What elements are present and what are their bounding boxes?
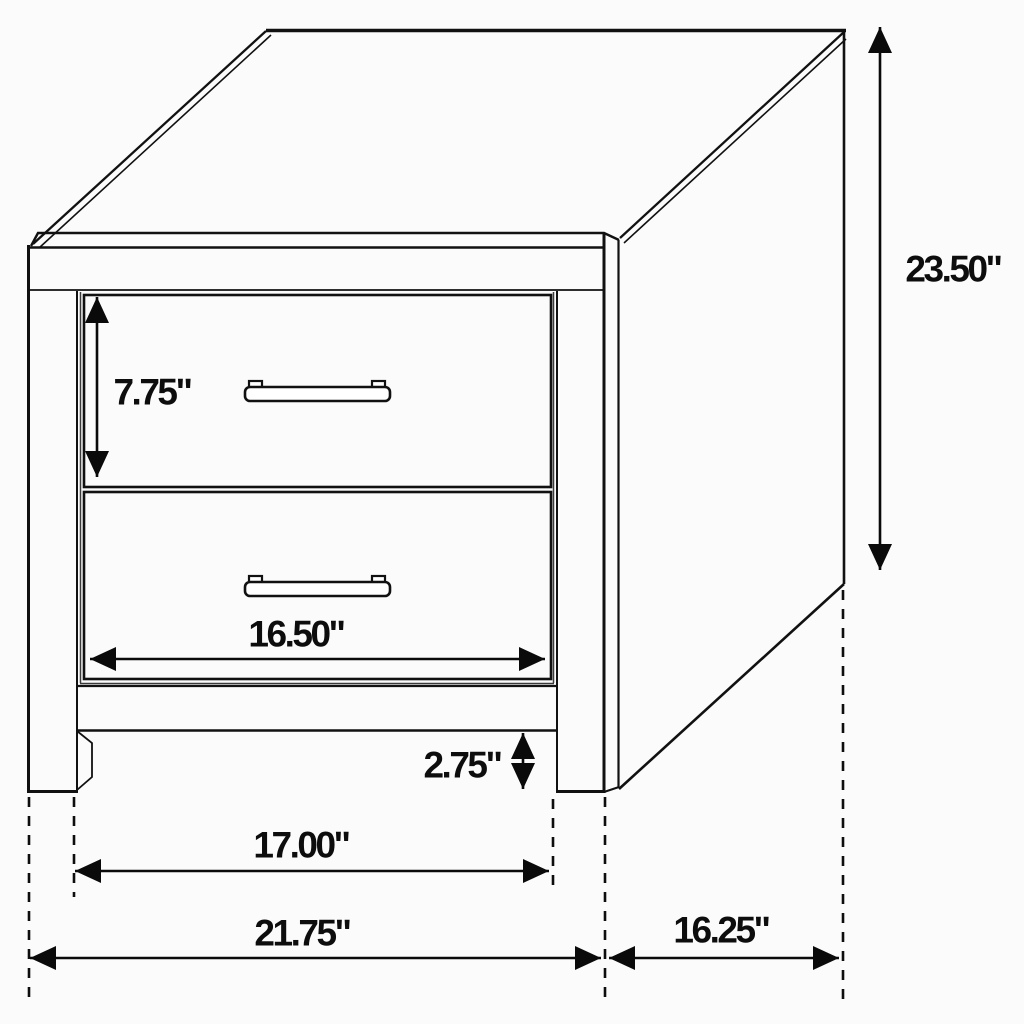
dimension-label-overall-width: 21.75" [254,915,349,952]
handle-2-bar [245,582,390,596]
top-left-edge [33,31,266,244]
dimension-label-overall-height: 23.50" [905,251,1000,288]
drawer-1-handle[interactable] [245,381,390,401]
side-panel-bottom-edge [619,584,844,789]
drawer-2-handle[interactable] [245,576,390,596]
left-leg-inner-face [77,731,92,790]
dimension-diagram: 23.50" 7.75" 16.50" 2.75" 17.00" 21.75" … [0,0,1024,1024]
dimension-label-leg-height: 2.75" [423,747,500,784]
dimension-label-top-drawer-height: 7.75" [113,374,190,411]
dimension-label-inner-leg-span: 17.00" [253,827,348,864]
nightstand-line-drawing [0,0,1024,1024]
handle-1-bar [245,387,390,401]
top-right-edge [620,32,844,238]
top-slab-front-edge [31,233,619,246]
right-leg-bottom-bevel [604,787,619,792]
dimension-label-side-depth: 16.25" [673,912,768,949]
top-right-edge-inner [624,39,846,243]
top-left-edge-inner [39,35,271,248]
dimension-label-drawer-front-width: 16.50" [248,616,343,653]
